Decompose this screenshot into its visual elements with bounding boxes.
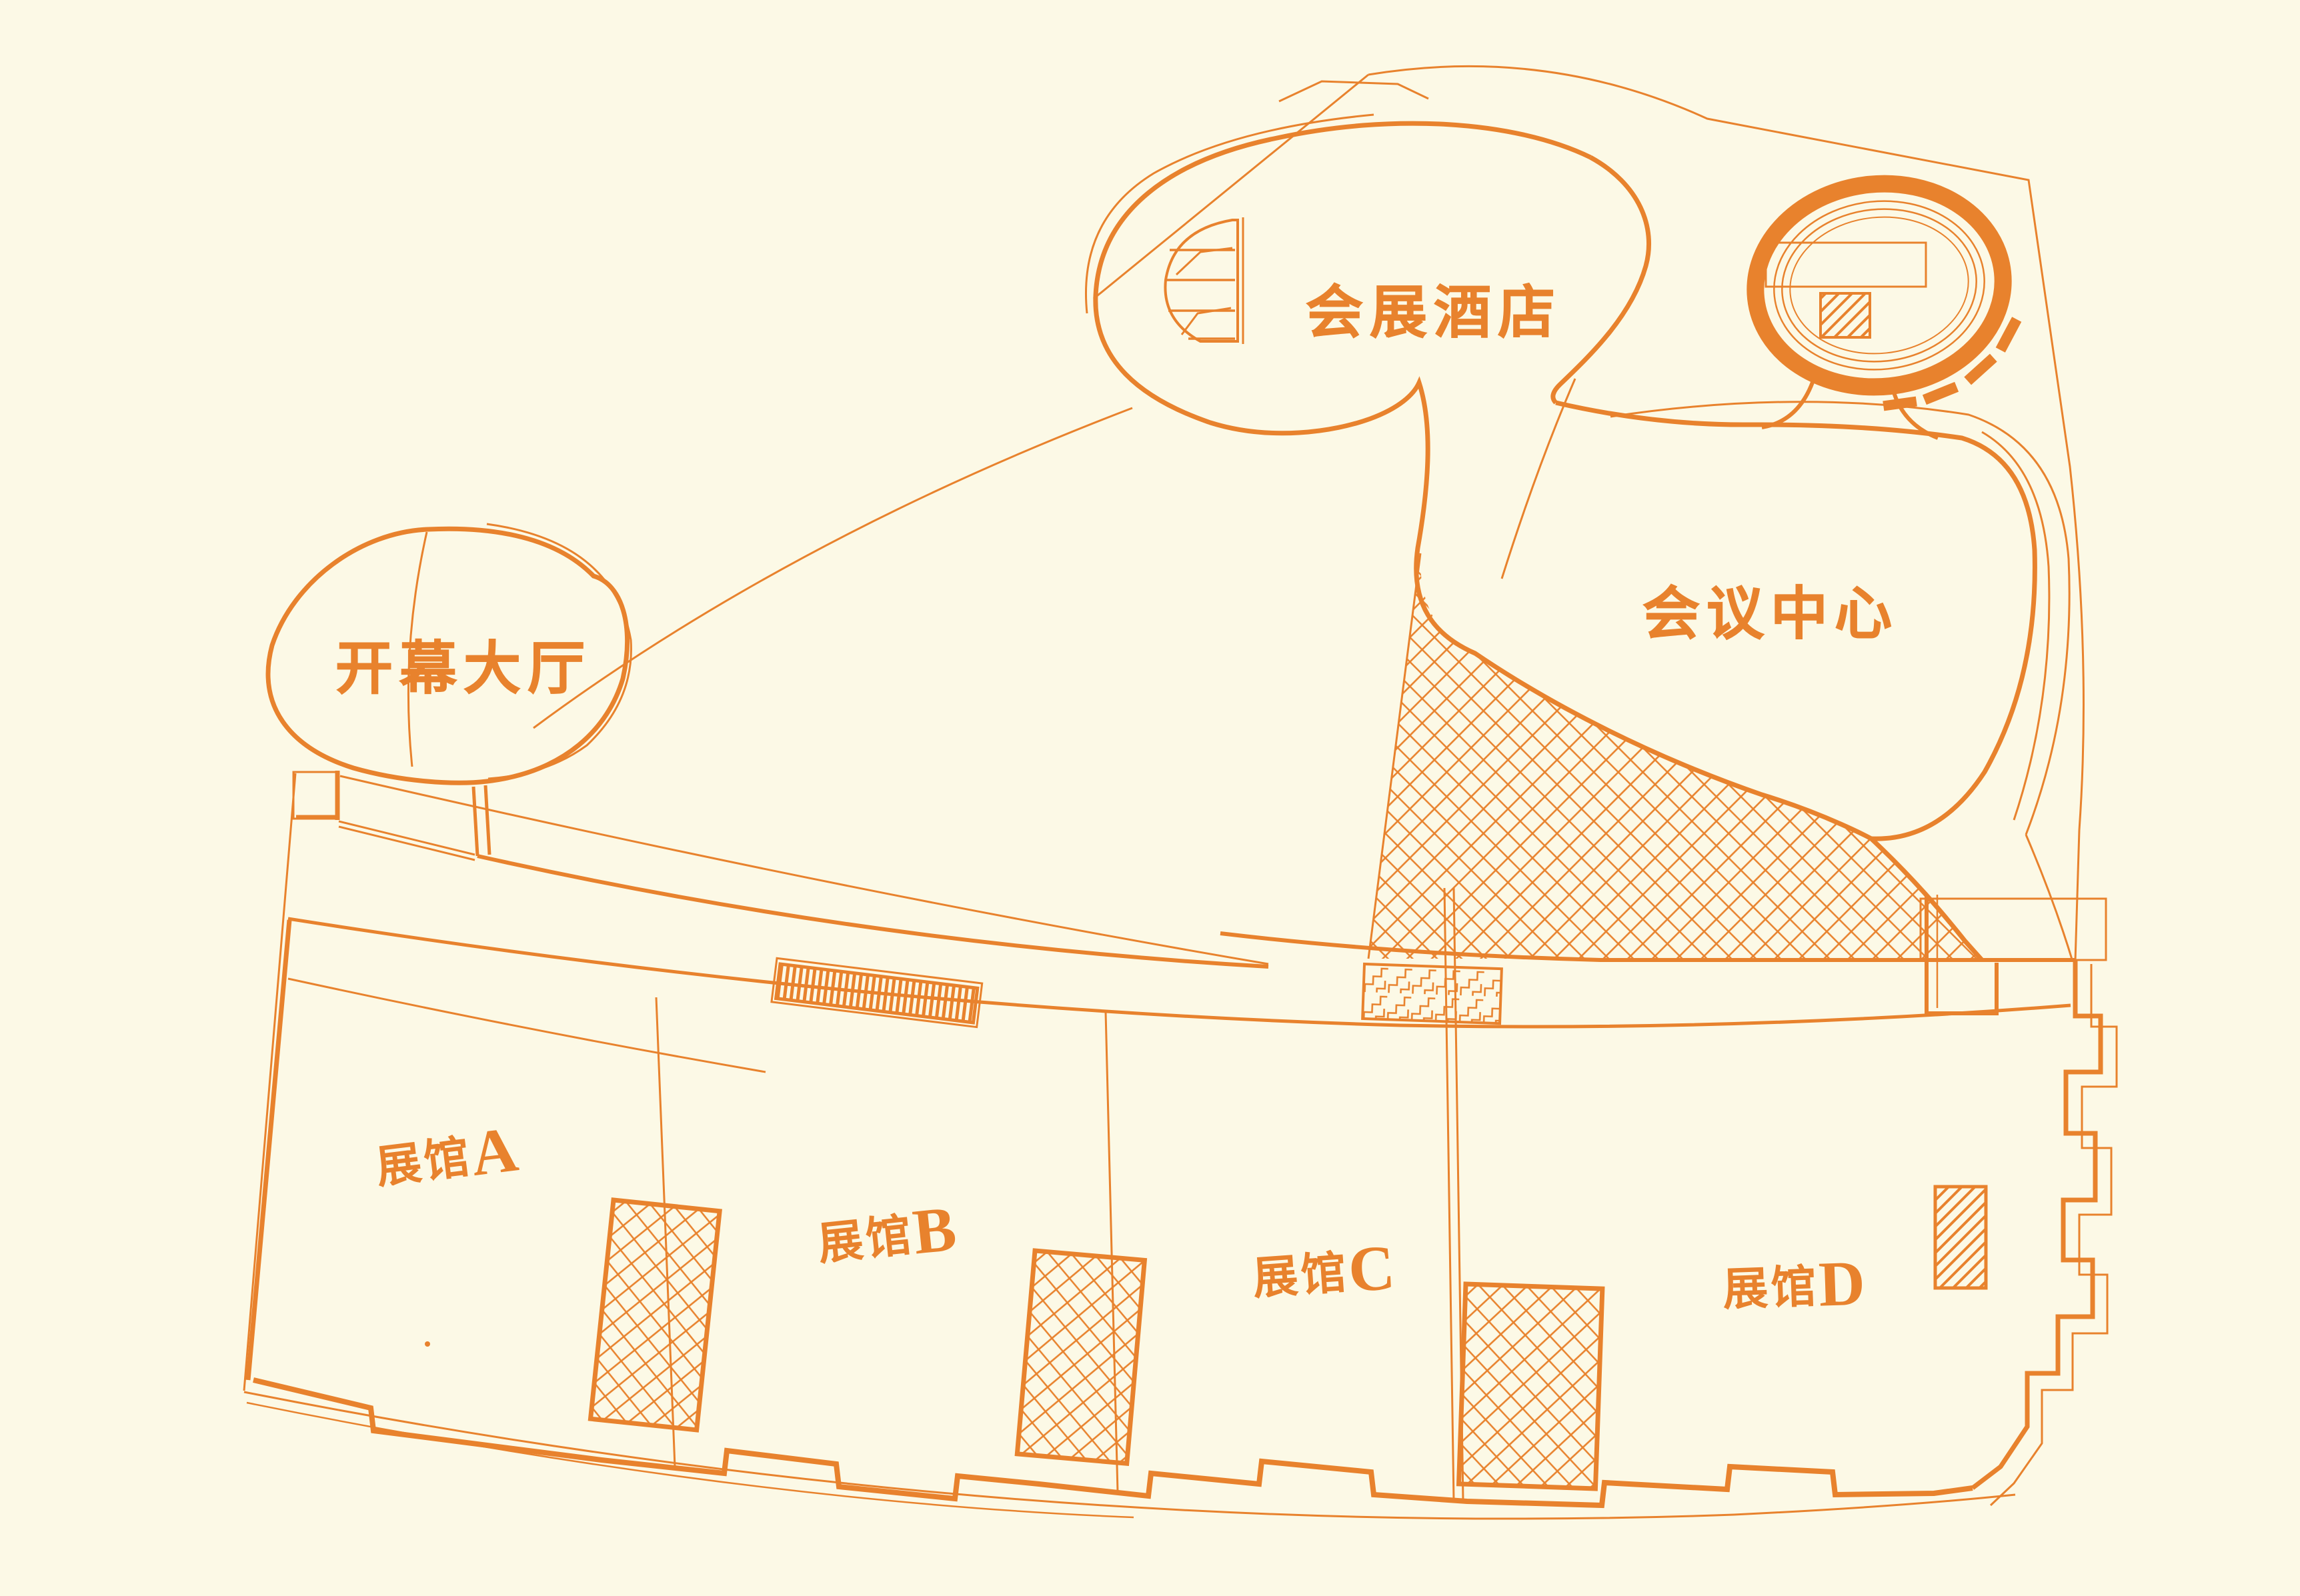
opening-hall-label[interactable]: 开幕大厅	[335, 637, 592, 701]
band-left-cap	[293, 772, 337, 819]
concourse-thin-upper	[340, 776, 1268, 964]
band-west-wall-thick	[248, 920, 289, 1380]
band-secondary-line	[288, 979, 766, 1072]
venue-map-canvas: 会展酒店 会议中心 开幕大厅	[0, 0, 2300, 1596]
brick-paving-icon	[1362, 964, 1502, 1023]
hotel-east-wall	[1553, 157, 1649, 403]
louver-atrium-icon	[1165, 217, 1243, 344]
opening-hall[interactable]: 开幕大厅	[268, 524, 631, 783]
core-hall-a-b	[591, 1200, 720, 1430]
boundary-roof-bump	[1279, 81, 1428, 101]
hall-d-label[interactable]: 展馆D	[1721, 1247, 1866, 1323]
ring-inner-line-3	[1783, 209, 1975, 363]
concourse-thin-twin	[339, 821, 475, 860]
corridor-east-edge	[485, 785, 489, 855]
band-right-stepped-thin	[1991, 964, 2117, 1505]
stadium-ring[interactable]	[1745, 171, 2021, 438]
survey-dot	[425, 1341, 430, 1347]
stadium-stage-hatch	[1821, 293, 1870, 337]
band-west-wall-thin	[244, 773, 295, 1391]
hall-a-label[interactable]: 展馆A	[371, 1113, 521, 1201]
conference-label[interactable]: 会议中心	[1642, 582, 1899, 646]
stadium-ring-icon[interactable]	[1745, 171, 2013, 399]
service-cores	[591, 1187, 1986, 1489]
hotel-label[interactable]: 会展酒店	[1306, 281, 1562, 345]
ring-inner-line-2	[1775, 199, 1984, 371]
venue-map: 会展酒店 会议中心 开幕大厅	[0, 0, 2300, 1596]
core-hall-b-c	[1017, 1251, 1144, 1463]
hall-b-label[interactable]: 展馆B	[814, 1192, 960, 1277]
band-left-cap-thick	[296, 771, 339, 820]
band-right-stepped-thick	[1973, 960, 2101, 1488]
neck-inner-line	[1502, 379, 1575, 579]
stair-comb-icon	[772, 958, 982, 1027]
core-hall-d-east	[1935, 1187, 1986, 1288]
hall-c-label[interactable]: 展馆C	[1250, 1231, 1397, 1313]
core-hall-c-d	[1459, 1284, 1602, 1489]
band-top-edge-west	[477, 856, 1268, 967]
corridor-west-edge	[473, 787, 477, 856]
stadium-field	[1766, 243, 1926, 287]
